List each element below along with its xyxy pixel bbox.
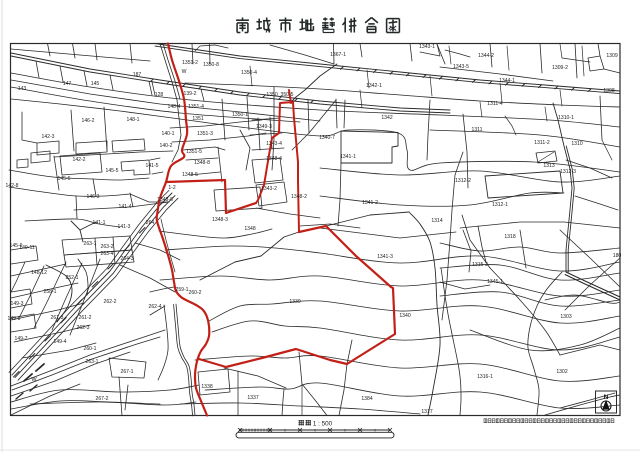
svg-text:1343-5: 1343-5 xyxy=(453,64,469,70)
svg-text:180: 180 xyxy=(613,253,622,259)
svg-text:146-2: 146-2 xyxy=(81,118,94,124)
svg-text:N: N xyxy=(604,394,609,401)
svg-text:261-3: 261-3 xyxy=(50,315,63,321)
svg-text:1-2: 1-2 xyxy=(168,185,176,191)
svg-text:1340: 1340 xyxy=(399,313,410,319)
svg-text:145-5: 145-5 xyxy=(105,168,118,174)
svg-text:143: 143 xyxy=(18,86,27,92)
svg-text:267-2: 267-2 xyxy=(95,396,108,402)
svg-text:1315-2: 1315-2 xyxy=(472,262,488,268)
svg-text:149-7: 149-7 xyxy=(14,336,27,342)
svg-text:1345-1: 1345-1 xyxy=(487,279,503,285)
svg-text:1348-8: 1348-8 xyxy=(194,160,210,166)
svg-text:141-5: 141-5 xyxy=(145,163,158,169)
svg-text:1350-4: 1350-4 xyxy=(241,70,257,76)
svg-text:262-4: 262-4 xyxy=(148,304,161,310)
svg-text:1342-1: 1342-1 xyxy=(366,83,382,89)
svg-text:263-1: 263-1 xyxy=(83,241,96,247)
svg-text:141-4: 141-4 xyxy=(118,204,131,210)
svg-text:1316-1: 1316-1 xyxy=(477,374,493,380)
svg-text:1384: 1384 xyxy=(361,396,372,402)
svg-text:1313: 1313 xyxy=(543,163,554,169)
svg-text:264: 264 xyxy=(146,220,155,226)
svg-text:261-2: 261-2 xyxy=(78,315,91,321)
svg-text:1343-2: 1343-2 xyxy=(261,186,277,192)
svg-text:1350-8: 1350-8 xyxy=(203,62,219,68)
svg-text:1339: 1339 xyxy=(289,299,300,305)
svg-text:262-3: 262-3 xyxy=(76,325,89,331)
svg-text:1312-2: 1312-2 xyxy=(455,178,471,184)
svg-text:1342: 1342 xyxy=(381,115,392,121)
svg-text:149-8: 149-8 xyxy=(7,316,20,322)
svg-text:1348-6: 1348-6 xyxy=(157,197,173,203)
svg-text:350-5: 350-5 xyxy=(280,92,293,98)
svg-text:145-6: 145-6 xyxy=(57,176,70,182)
svg-text:259-1: 259-1 xyxy=(175,287,188,293)
svg-text:1309-2: 1309-2 xyxy=(552,65,568,71)
svg-text:187: 187 xyxy=(133,72,142,78)
svg-text:140-2: 140-2 xyxy=(159,143,172,149)
svg-text:267-1: 267-1 xyxy=(120,369,133,375)
svg-text:1351-5: 1351-5 xyxy=(186,149,202,155)
svg-text:145: 145 xyxy=(91,81,100,87)
svg-text:1351-3: 1351-3 xyxy=(197,131,213,137)
svg-text:1311: 1311 xyxy=(472,127,483,133)
svg-text:1343-1: 1343-1 xyxy=(419,44,435,50)
svg-text:262-2: 262-2 xyxy=(103,299,116,305)
svg-text:146-3: 146-3 xyxy=(86,194,99,200)
svg-text:1312-3: 1312-3 xyxy=(560,169,576,175)
svg-text:1341-1: 1341-1 xyxy=(340,154,356,160)
svg-text:140-1: 140-1 xyxy=(161,131,174,137)
svg-text:263-1: 263-1 xyxy=(85,359,98,365)
svg-text:1349-3: 1349-3 xyxy=(256,124,272,130)
svg-text:148-1: 148-1 xyxy=(126,117,139,123)
svg-text:1348-5: 1348-5 xyxy=(182,172,198,178)
svg-text:1302: 1302 xyxy=(556,369,567,375)
svg-text:1308: 1308 xyxy=(603,88,614,94)
svg-text:142-2: 142-2 xyxy=(72,157,85,163)
svg-text:263-4: 263-4 xyxy=(100,251,113,257)
svg-text:149-3: 149-3 xyxy=(10,301,23,307)
svg-text:142-3: 142-3 xyxy=(41,134,54,140)
svg-text:1344-1: 1344-1 xyxy=(499,78,515,84)
svg-text:149-4: 149-4 xyxy=(53,339,66,345)
svg-text:1341-2: 1341-2 xyxy=(362,200,378,206)
svg-text:1348-3: 1348-3 xyxy=(212,217,228,223)
svg-text:1350-1: 1350-1 xyxy=(232,112,248,118)
svg-text:1310-1: 1310-1 xyxy=(558,115,574,121)
svg-text:W: W xyxy=(182,69,187,75)
svg-text:1351: 1351 xyxy=(192,116,203,122)
svg-text:141-1: 141-1 xyxy=(92,220,105,226)
svg-text:1338: 1338 xyxy=(201,384,212,390)
svg-text:1343-4: 1343-4 xyxy=(266,141,282,147)
svg-text:1317: 1317 xyxy=(421,409,432,415)
svg-text:1348: 1348 xyxy=(244,226,255,232)
svg-text:258-1: 258-1 xyxy=(43,289,56,295)
svg-text:141-3: 141-3 xyxy=(117,224,130,230)
svg-text:128: 128 xyxy=(155,92,164,98)
svg-text:148-4: 148-4 xyxy=(167,104,180,110)
svg-text:252-1: 252-1 xyxy=(65,275,78,281)
svg-text:1310: 1310 xyxy=(571,141,582,147)
svg-text:1311-4: 1311-4 xyxy=(487,101,503,107)
svg-text:1303: 1303 xyxy=(560,314,571,320)
svg-text:1351-2: 1351-2 xyxy=(182,60,198,66)
svg-text:1341-3: 1341-3 xyxy=(377,254,393,260)
svg-text:1348-4: 1348-4 xyxy=(266,156,282,162)
svg-text:1 : 500: 1 : 500 xyxy=(313,421,333,428)
svg-text:1337: 1337 xyxy=(247,395,258,401)
svg-text:142-8: 142-8 xyxy=(5,183,18,189)
svg-text:1318: 1318 xyxy=(504,234,515,240)
svg-text:1348-2: 1348-2 xyxy=(291,194,307,200)
svg-text:260-1: 260-1 xyxy=(83,346,96,352)
svg-text:263-2: 263-2 xyxy=(100,244,113,250)
svg-text:1344-2: 1344-2 xyxy=(478,53,494,59)
svg-text:264-3: 264-3 xyxy=(120,256,133,262)
svg-text:W: W xyxy=(31,377,37,383)
svg-text:148-12: 148-12 xyxy=(31,270,47,276)
svg-text:147: 147 xyxy=(63,81,72,87)
svg-text:1350: 1350 xyxy=(266,92,277,98)
svg-text:139-2: 139-2 xyxy=(183,91,196,97)
svg-text:1314: 1314 xyxy=(431,218,442,224)
svg-text:145-9: 145-9 xyxy=(9,243,22,249)
svg-text:1309: 1309 xyxy=(606,53,617,59)
svg-text:1311-2: 1311-2 xyxy=(534,140,550,146)
svg-text:1351-4: 1351-4 xyxy=(188,104,204,110)
svg-text:1367-1: 1367-1 xyxy=(330,52,346,58)
svg-text:1312-1: 1312-1 xyxy=(492,202,508,208)
svg-text:1340-7: 1340-7 xyxy=(319,135,335,141)
svg-text:260-2: 260-2 xyxy=(188,290,201,296)
